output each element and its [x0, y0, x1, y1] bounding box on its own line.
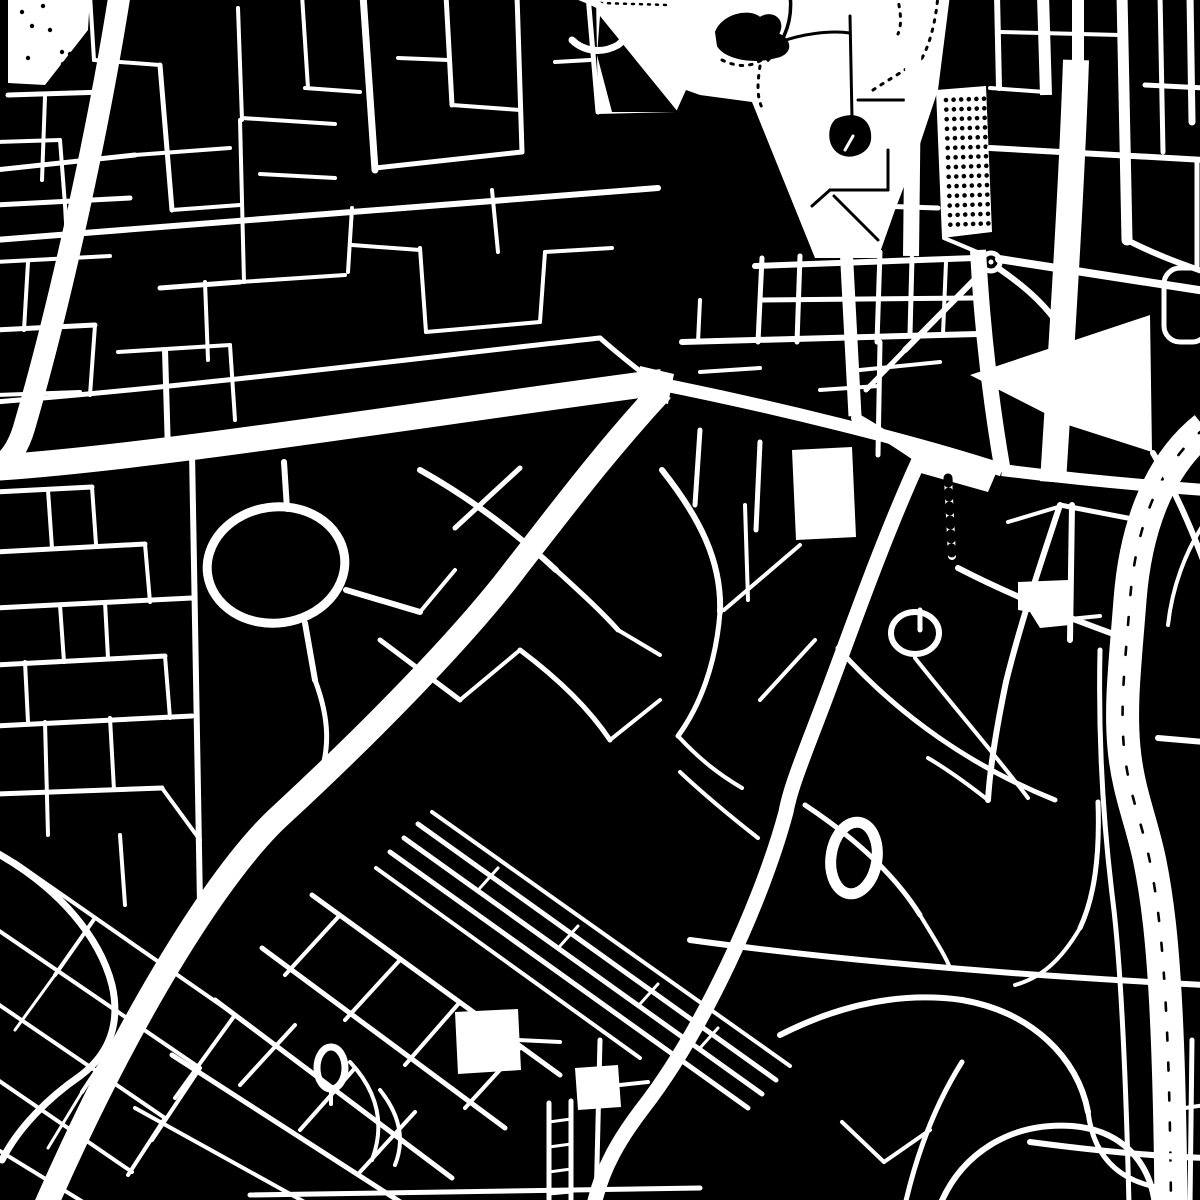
city-map-canvas[interactable]	[0, 0, 1200, 1200]
map-viewport	[0, 0, 1200, 1200]
